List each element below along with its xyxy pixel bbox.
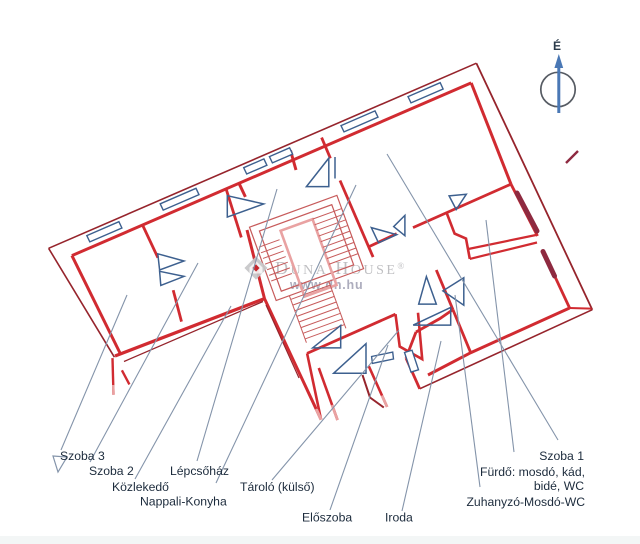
svg-text:Nappali-Konyha: Nappali-Konyha	[140, 495, 227, 509]
svg-text:Lépcsőház: Lépcsőház	[170, 464, 229, 478]
svg-text:Közlekedő: Közlekedő	[112, 480, 169, 494]
svg-text:Előszoba: Előszoba	[302, 511, 352, 525]
svg-text:Tároló (külső): Tároló (külső)	[240, 480, 315, 494]
svg-text:Szoba 3: Szoba 3	[60, 449, 105, 463]
svg-text:É: É	[553, 38, 561, 53]
svg-text:bidé, WC: bidé, WC	[534, 479, 584, 493]
svg-text:Szoba 2: Szoba 2	[89, 464, 134, 478]
svg-text:Iroda: Iroda	[385, 511, 413, 525]
svg-text:Fürdő: mosdó, kád,: Fürdő: mosdó, kád,	[480, 465, 585, 479]
svg-text:Szoba 1: Szoba 1	[539, 449, 584, 463]
svg-text:Zuhanyzó-Mosdó-WC: Zuhanyzó-Mosdó-WC	[466, 495, 585, 509]
